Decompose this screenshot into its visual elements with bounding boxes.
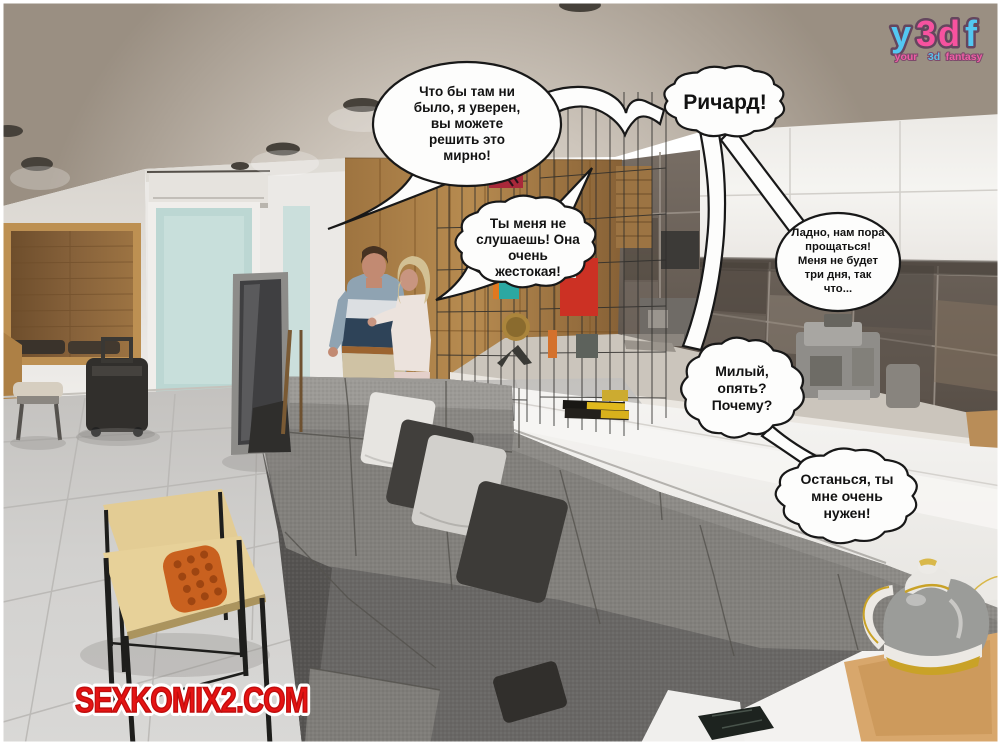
svg-text:f: f <box>965 13 978 54</box>
svg-text:Что бы там ни: Что бы там ни <box>419 84 515 99</box>
svg-text:что...: что... <box>824 283 852 295</box>
svg-text:Меня не будет: Меня не будет <box>798 255 879 267</box>
svg-text:вы можете: вы можете <box>431 116 504 131</box>
svg-text:Ладно, нам пора: Ладно, нам пора <box>791 227 885 239</box>
svg-text:очень: очень <box>508 248 548 263</box>
svg-text:мирно!: мирно! <box>443 148 490 163</box>
svg-text:Почему?: Почему? <box>712 397 773 413</box>
svg-text:your: your <box>895 51 918 63</box>
svg-text:три дня, так: три дня, так <box>805 269 872 281</box>
svg-text:решить это: решить это <box>429 132 505 147</box>
svg-text:Ричард!: Ричард! <box>683 91 766 114</box>
svg-text:fantasy: fantasy <box>946 51 983 63</box>
svg-text:3d: 3d <box>928 51 940 63</box>
svg-text:SEXKOMIX2.COM: SEXKOMIX2.COM <box>75 681 308 720</box>
svg-text:нужен!: нужен! <box>823 505 870 521</box>
svg-text:d: d <box>938 13 960 54</box>
svg-text:опять?: опять? <box>717 380 766 396</box>
svg-text:мне очень: мне очень <box>811 488 883 504</box>
svg-text:3: 3 <box>916 13 936 54</box>
svg-text:Ты меня не: Ты меня не <box>490 216 567 231</box>
svg-text:Останься, ты: Останься, ты <box>801 471 894 487</box>
svg-text:Милый,: Милый, <box>715 363 769 379</box>
svg-text:жестокая!: жестокая! <box>494 264 561 279</box>
svg-text:было, я уверен,: было, я уверен, <box>414 100 520 115</box>
svg-text:y: y <box>891 13 911 54</box>
svg-text:прощаться!: прощаться! <box>805 241 871 253</box>
svg-text:слушаешь! Она: слушаешь! Она <box>476 232 580 247</box>
